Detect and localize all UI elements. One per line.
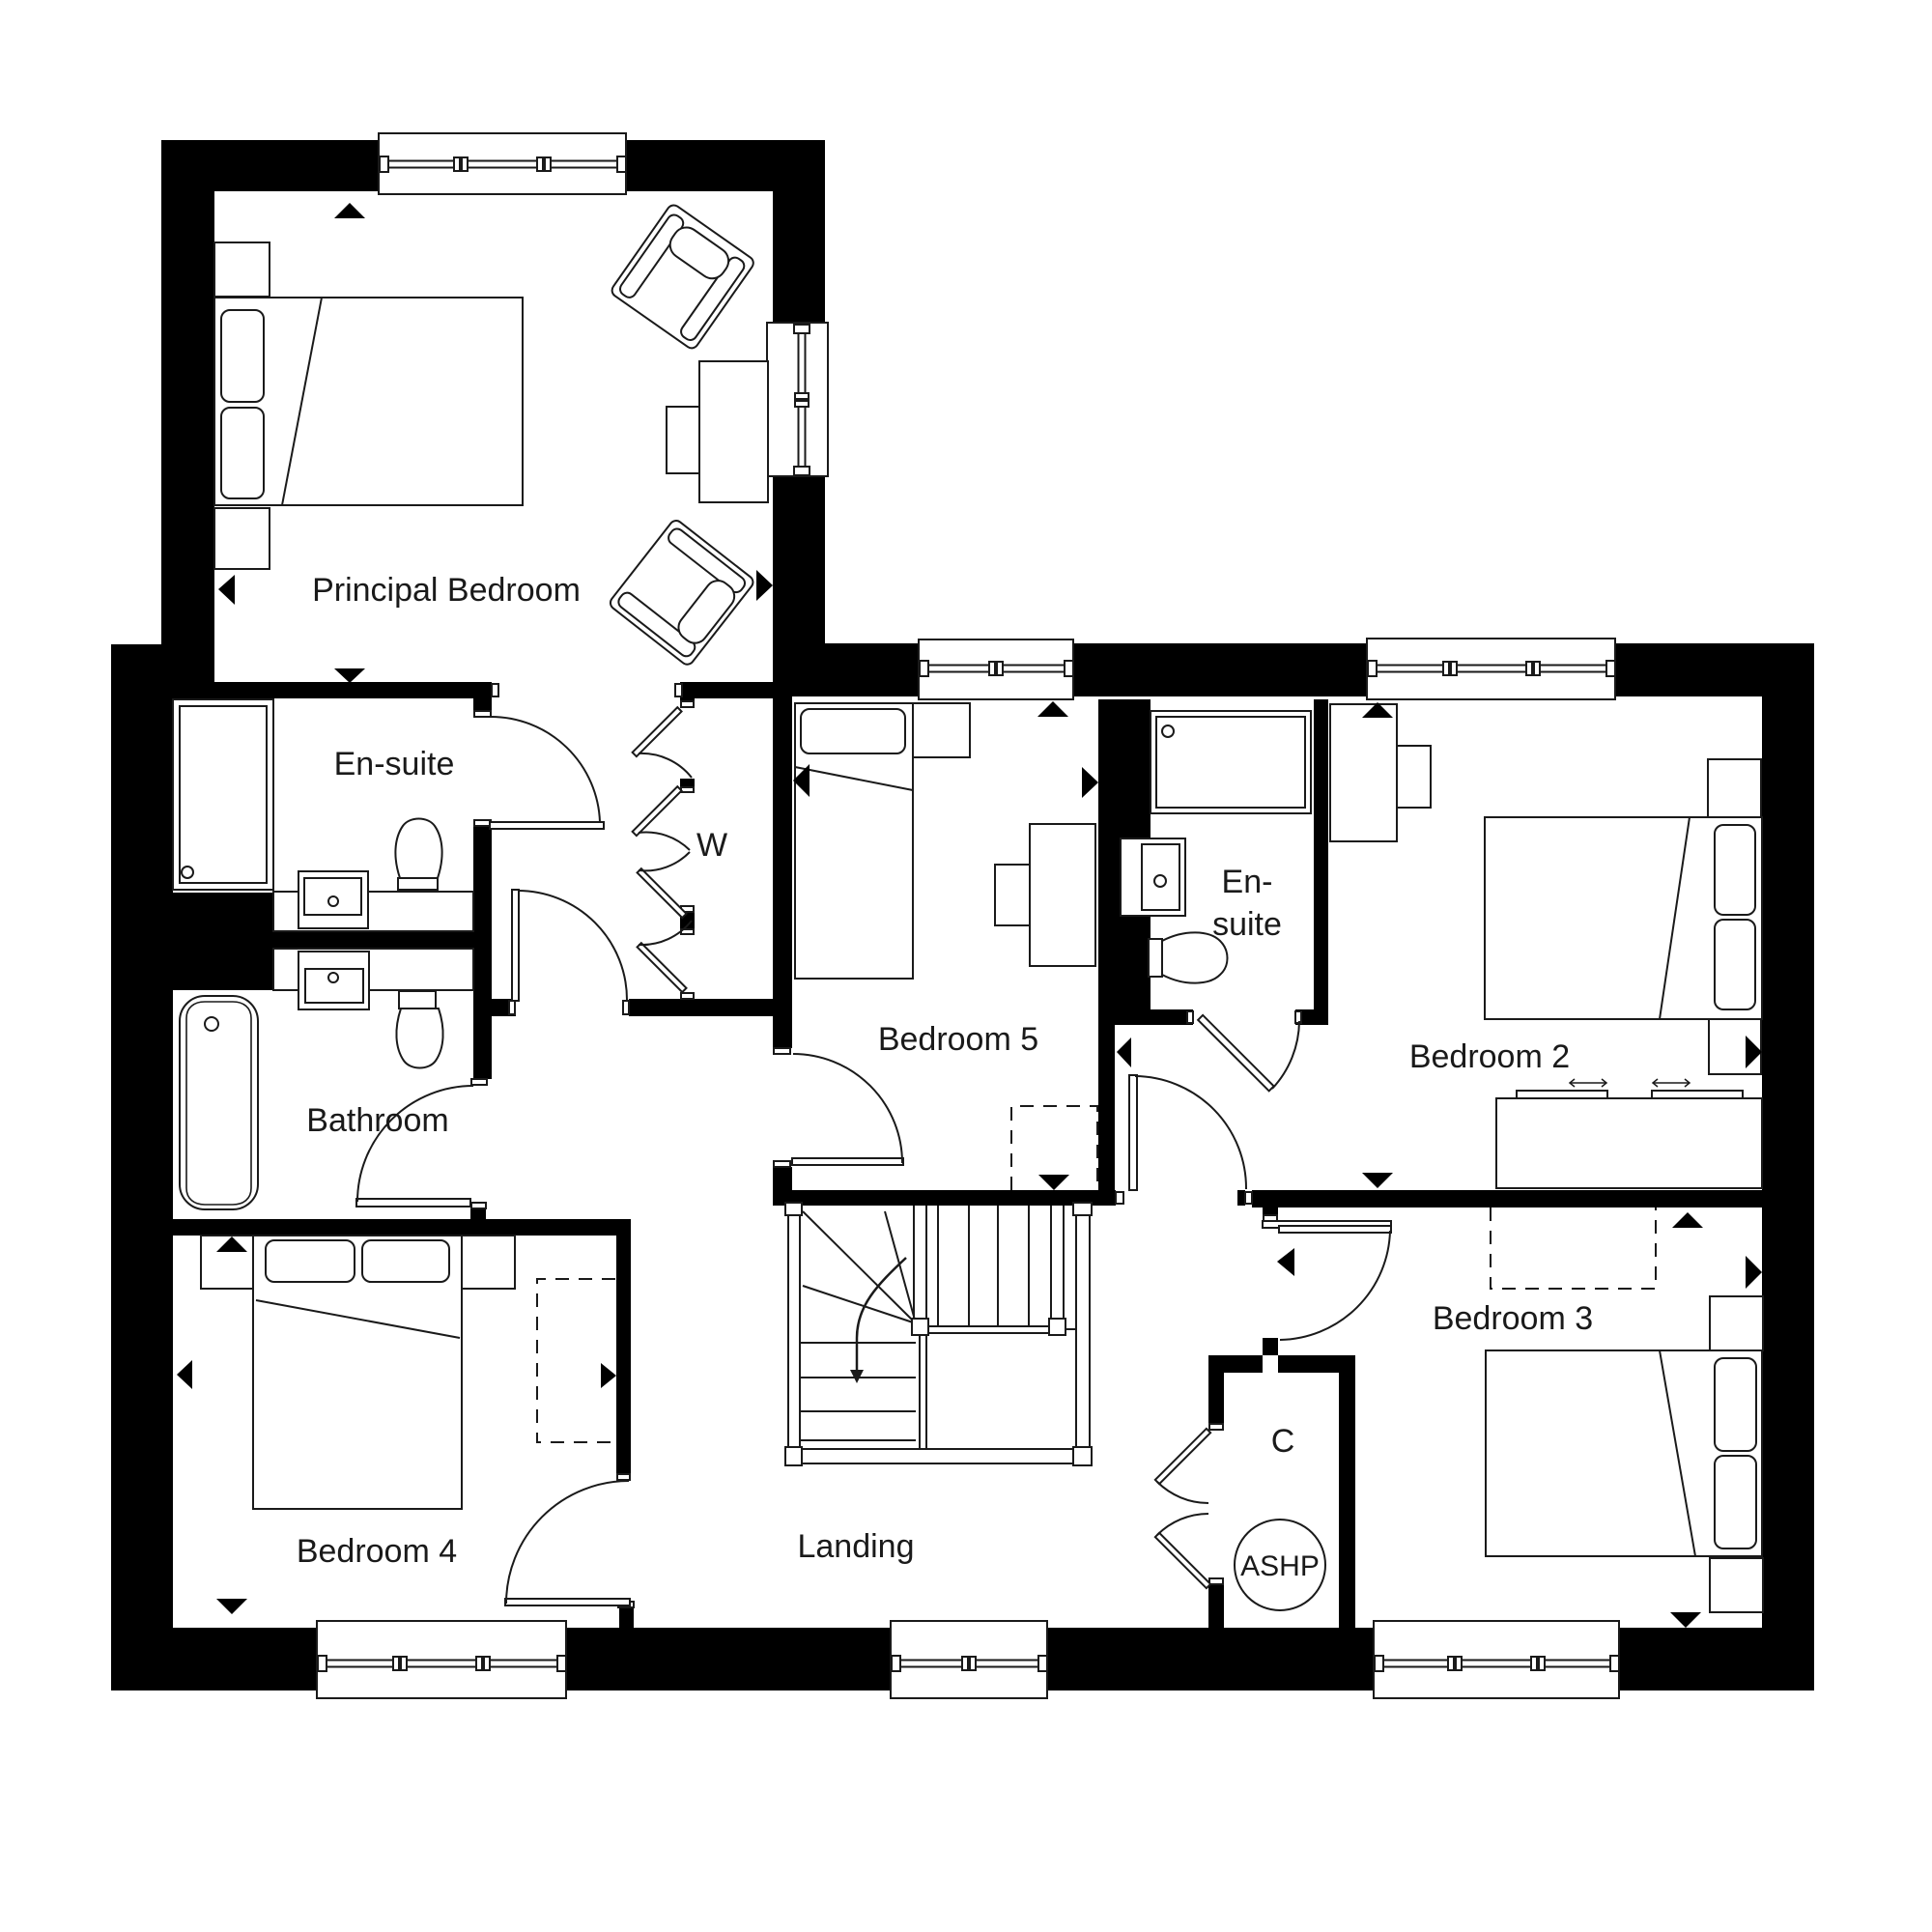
- svg-text:Landing: Landing: [797, 1528, 914, 1565]
- svg-text:Bedroom 2: Bedroom 2: [1409, 1038, 1570, 1075]
- svg-text:Bathroom: Bathroom: [306, 1102, 448, 1139]
- svg-text:suite: suite: [1212, 906, 1282, 943]
- svg-text:C: C: [1271, 1423, 1295, 1460]
- svg-text:Bedroom 3: Bedroom 3: [1433, 1300, 1593, 1337]
- svg-text:En-suite: En-suite: [334, 746, 455, 782]
- svg-text:En-: En-: [1222, 864, 1273, 900]
- svg-text:Bedroom 4: Bedroom 4: [297, 1533, 457, 1570]
- svg-text:W: W: [696, 827, 727, 864]
- svg-text:ASHP: ASHP: [1240, 1550, 1320, 1582]
- svg-text:Bedroom 5: Bedroom 5: [878, 1021, 1038, 1058]
- svg-text:Principal Bedroom: Principal Bedroom: [312, 572, 581, 609]
